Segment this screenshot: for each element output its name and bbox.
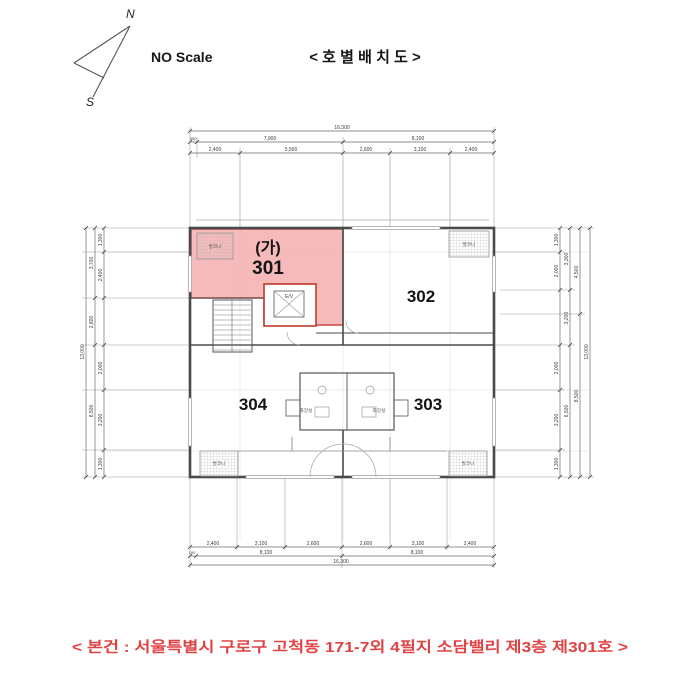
dim-label: 1,300 [98, 458, 104, 471]
dim-label: 13,000 [584, 344, 590, 360]
balcony-label: 발코니 [213, 460, 226, 467]
balcony-label: 발코니 [462, 460, 475, 467]
dim-label: 2,000 [554, 265, 560, 278]
dim-label: 2,400 [207, 541, 220, 547]
dim-label: 3,200 [98, 414, 104, 427]
dim-label: 1,300 [98, 234, 104, 247]
dim-label: 3,100 [414, 147, 427, 153]
dim-label: 2,600 [360, 147, 373, 153]
dim-label: 3,200 [554, 414, 560, 427]
dim-label: 5,500 [285, 147, 298, 153]
dim-label: 2,600 [307, 541, 320, 547]
dimension-lines [86, 131, 590, 565]
toilet-label: 화장실 [300, 407, 313, 414]
caption: < 본건 : 서울특별시 구로구 고척동 171-7외 4필지 소담밸리 제3층… [72, 638, 628, 656]
unit-302-number: 302 [407, 287, 435, 306]
bathroom-block [286, 373, 408, 430]
extension-lines [82, 127, 594, 568]
dimensions-left: 1,300 2,400 2,000 3,200 1,300 3,700 2,80… [80, 234, 104, 471]
dim-label: 2,400 [464, 541, 477, 547]
dimensions-bottom: 2,400 3,100 2,600 2,600 3,100 2,400 100 … [189, 541, 477, 565]
dim-label: 6,500 [89, 405, 95, 418]
elevator-core: E/V [264, 284, 316, 326]
dim-label: 100 [189, 550, 196, 555]
scale-note: NO Scale [151, 49, 213, 65]
floorplan-canvas: N S NO Scale < 호 별 배 치 도 > [0, 0, 700, 683]
dim-label: 3,200 [564, 312, 570, 325]
dim-label: 1,300 [554, 458, 560, 471]
unit-304-number: 304 [239, 395, 268, 414]
dim-label: 3,100 [412, 541, 425, 547]
dim-label: 3,300 [564, 253, 570, 266]
dim-label: 16,300 [334, 125, 350, 131]
dim-label: 8,500 [574, 390, 580, 403]
dim-label: 8,100 [260, 550, 273, 556]
drawing-title: < 호 별 배 치 도 > [309, 48, 421, 66]
dim-label: 8,100 [412, 136, 425, 142]
dim-label: 2,400 [209, 147, 222, 153]
dimensions-top: 16,300 300 7,900 8,100 2,400 5,500 2,600… [190, 125, 478, 153]
dim-label: 4,500 [574, 266, 580, 279]
unit-303-number: 303 [414, 395, 442, 414]
grid-lines [100, 160, 588, 540]
dim-label: 2,800 [89, 316, 95, 329]
dim-label: 2,600 [360, 541, 373, 547]
elevator-label: E/V [285, 294, 294, 300]
south-label: S [86, 95, 94, 109]
balcony-label: 발코니 [209, 243, 222, 250]
dim-label: 2,000 [98, 362, 104, 375]
dim-label: 3,100 [255, 541, 268, 547]
unit-301-mark: (가) [255, 239, 280, 257]
dimension-ticks [84, 129, 592, 567]
unit-301-number: 301 [252, 258, 284, 279]
dim-label: 6,500 [564, 405, 570, 418]
dimensions-right: 1,300 2,000 2,000 3,200 1,300 3,300 3,20… [554, 234, 590, 471]
toilet-label: 화장실 [373, 407, 386, 414]
dim-label: 2,400 [98, 269, 104, 282]
dim-label: 8,100 [411, 550, 424, 556]
north-arrow [74, 26, 130, 97]
dim-label: 13,000 [80, 344, 86, 360]
dim-label: 300 [190, 136, 197, 141]
dim-label: 2,400 [465, 147, 478, 153]
dim-label: 3,700 [89, 257, 95, 270]
dim-label: 16,300 [333, 559, 349, 565]
dim-label: 2,000 [554, 362, 560, 375]
balcony-label: 발코니 [463, 241, 476, 248]
dim-label: 7,900 [264, 136, 277, 142]
north-label: N [126, 7, 135, 21]
dim-label: 1,300 [554, 234, 560, 247]
